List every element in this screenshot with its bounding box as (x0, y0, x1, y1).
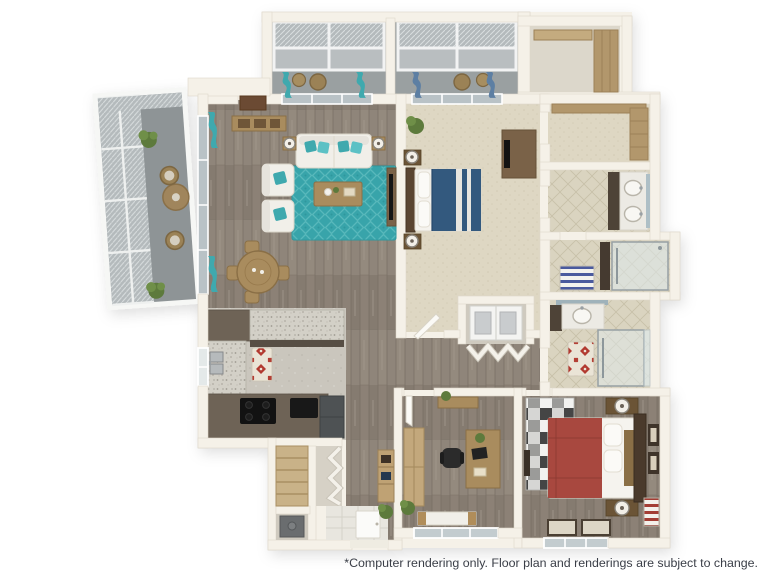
nightstand-lamp (606, 500, 638, 516)
kitchen-window (198, 348, 208, 386)
office-window (414, 528, 498, 538)
disclaimer-text: *Computer rendering only. Floor plan and… (344, 556, 758, 570)
kitchen-red-rug (252, 348, 272, 381)
side-table-lamp (372, 137, 385, 150)
nightstand-lamp (404, 234, 421, 249)
counter-appliance (290, 398, 318, 418)
pillow (604, 424, 622, 446)
pantry-closet (276, 446, 308, 506)
tufted-runner (624, 430, 634, 486)
tv-screen (389, 174, 393, 220)
bed-runner (456, 169, 462, 231)
floor-plan-rendering (0, 0, 764, 573)
sink (573, 309, 591, 324)
utility-closet (276, 514, 308, 540)
corridor-bookshelf (378, 450, 394, 502)
striped-luggage-rack (644, 498, 659, 526)
tall-cabinet (404, 428, 424, 506)
papers (474, 468, 486, 476)
tv-console (387, 168, 396, 226)
master-bathroom (608, 172, 650, 230)
screened-patio-left (92, 87, 201, 310)
armchair (262, 200, 294, 232)
kitchen-sink (210, 364, 223, 374)
balcony-screen-roof-right (398, 22, 516, 70)
pillow (418, 172, 430, 198)
headboard (634, 414, 646, 502)
towel-cabinet (600, 242, 610, 290)
nightstand-lamp (404, 150, 421, 165)
shower (598, 330, 650, 386)
kitchen-corner-counter (206, 310, 252, 341)
throw-pillow (337, 140, 349, 152)
entry-nook-wall (188, 78, 270, 96)
master-balcony-slider (412, 94, 502, 104)
office-chair (440, 448, 464, 468)
living-balcony-slider (282, 94, 372, 104)
side-table-lamp (283, 137, 296, 150)
tv-screen (504, 140, 510, 168)
sink (625, 181, 642, 196)
armchair (262, 164, 294, 196)
faucet (639, 186, 642, 189)
desk-plant (475, 433, 485, 443)
accent-mat (582, 520, 610, 535)
closet-shelf (534, 30, 592, 40)
breakfast-bar-face (250, 340, 344, 347)
bedroom2-window (544, 538, 608, 548)
shower-head (658, 246, 662, 250)
throw-pillow (350, 141, 363, 154)
pillow (418, 201, 430, 227)
pillow (604, 450, 622, 472)
desk (466, 430, 500, 488)
stove-cooktop (240, 398, 276, 424)
sink (625, 207, 642, 222)
dining-table (237, 251, 279, 293)
dresser-tv (502, 130, 536, 178)
faucet (639, 212, 642, 215)
vanity-cabinet (550, 305, 562, 331)
office-door (406, 396, 412, 426)
entry-corridor-floor (346, 308, 396, 540)
walk-in-shower (612, 242, 668, 290)
sofa (296, 134, 372, 168)
balcony-screen-roof-left (274, 22, 384, 70)
floor-plan-page: *Computer rendering only. Floor plan and… (0, 0, 764, 573)
hallway-floor (396, 338, 540, 390)
vanity-cabinet (608, 172, 620, 230)
headboard (406, 168, 415, 232)
stacked-washer-dryer (470, 306, 522, 340)
throw-pillow (317, 141, 330, 154)
red-bath-rug (568, 342, 594, 376)
patio-sliding-door (198, 116, 208, 294)
bed-runner (467, 169, 471, 231)
throw-pillow (304, 140, 317, 153)
coffee-table (314, 182, 362, 206)
mirror (646, 174, 650, 228)
coat-closet (316, 446, 342, 506)
accent-mat (548, 520, 576, 535)
wall-mirror (524, 450, 530, 476)
entry-console-table (232, 116, 286, 131)
master-bed (406, 168, 481, 232)
closet-shelving (594, 30, 618, 92)
faucet (580, 306, 583, 309)
door-knob (376, 523, 379, 526)
front-door-threshold (350, 540, 388, 548)
entry-door-mat (240, 96, 266, 110)
window-bench (418, 512, 476, 525)
breakfast-bar (250, 310, 344, 340)
nightstand-lamp (606, 398, 638, 414)
glass-panel (644, 330, 650, 386)
kitchen-sink (210, 352, 223, 362)
striped-bath-mat (560, 266, 594, 290)
laptop (471, 447, 487, 460)
bed2 (548, 414, 646, 502)
